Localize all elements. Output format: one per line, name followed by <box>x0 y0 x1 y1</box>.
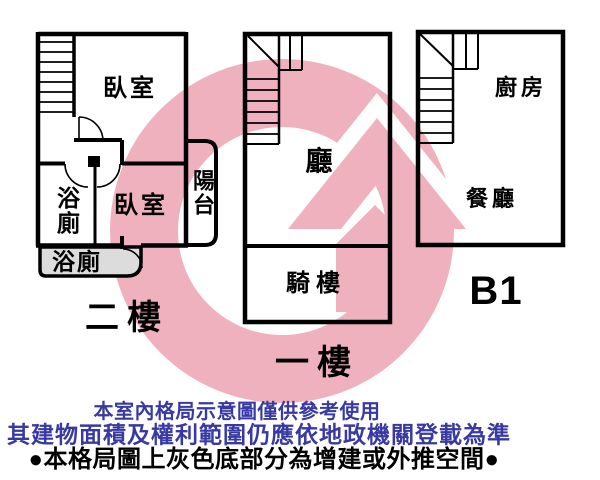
room-label-arcade: 騎樓 <box>286 272 346 296</box>
door-jamb-block <box>88 156 100 167</box>
staircase-floor2-icon <box>38 42 74 112</box>
disclaimer-line1: 本室內格局示意圖僅供參考使用 <box>94 402 381 422</box>
room-label-kitchen: 廚房 <box>495 77 547 99</box>
room-label-bedroom-lower: 臥室 <box>114 194 168 218</box>
staircase-basement-icon <box>418 34 478 143</box>
floor-label-1f: 一樓 <box>275 346 359 380</box>
watermark-g-arrow-logo <box>144 93 482 369</box>
floor-label-b1: B1 <box>469 271 522 311</box>
door-swings-floor2 <box>65 117 120 187</box>
disclaimer-line3: ●本格局圖上灰色底部分為增建或外推空間● <box>29 448 500 472</box>
room-label-bedroom-top: 臥室 <box>103 77 157 101</box>
room-label-hall: 廳 <box>306 149 333 176</box>
disclaimer-line2: 其建物面積及權利範圍仍應依地政機關登載為準 <box>7 424 511 447</box>
room-label-bathroom-annex: 浴廁 <box>52 251 102 274</box>
room-label-balcony: 陽台 <box>191 169 213 217</box>
room-label-bathroom: 浴廁 <box>55 186 78 236</box>
floor-label-2f: 二樓 <box>85 301 169 335</box>
room-label-dining: 餐廳 <box>466 188 518 210</box>
floorplan-image: 臥室 浴廁 臥室 陽台 浴廁 二樓 廳 騎樓 一樓 廚房 餐廳 B1 本室內格局… <box>0 0 600 480</box>
